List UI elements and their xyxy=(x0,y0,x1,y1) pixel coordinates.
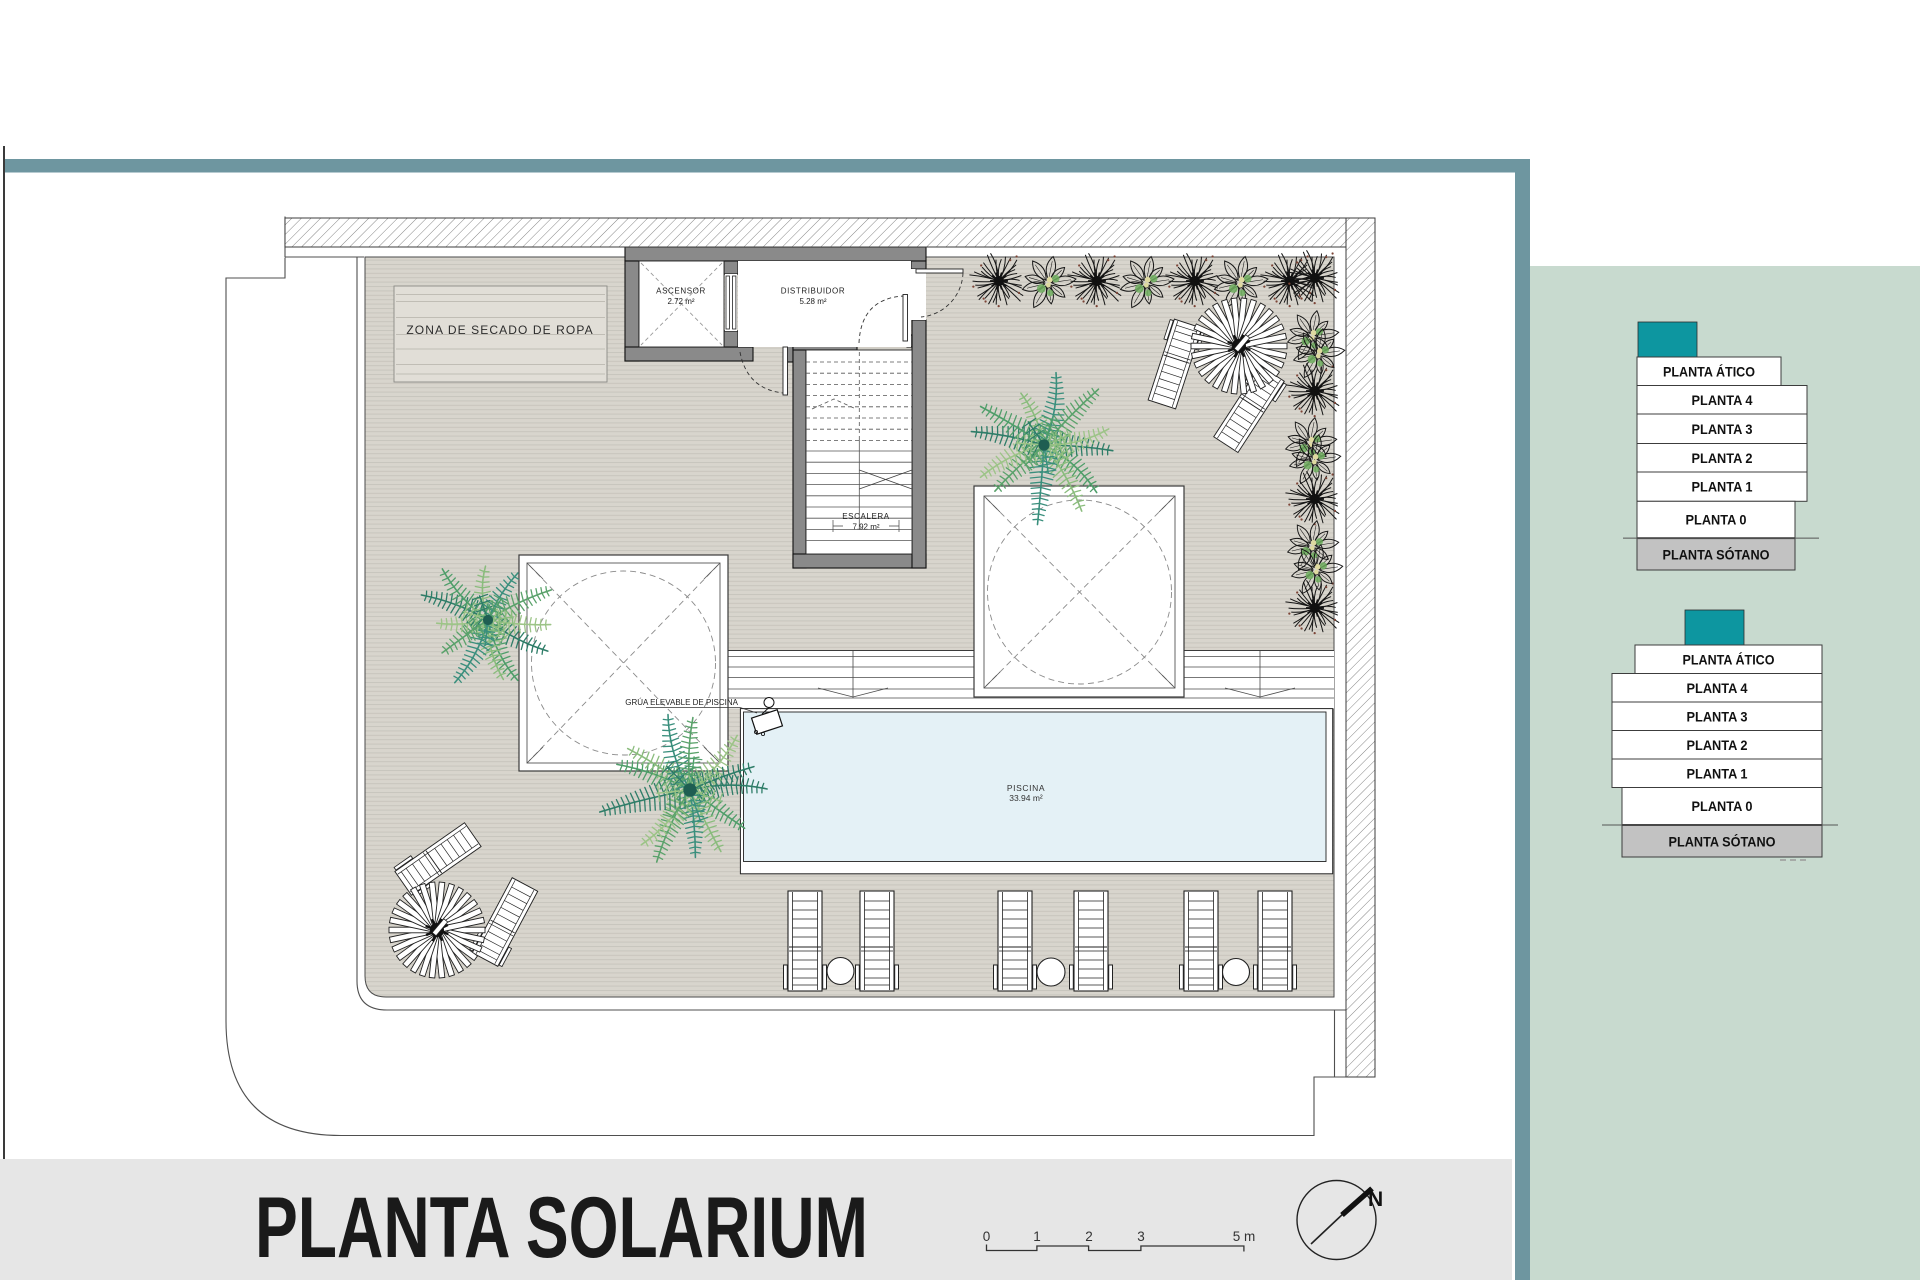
svg-text:PLANTA 3: PLANTA 3 xyxy=(1687,708,1748,724)
svg-text:PLANTA 0: PLANTA 0 xyxy=(1686,512,1747,528)
svg-text:5 m: 5 m xyxy=(1233,1229,1256,1244)
svg-text:PLANTA SÓTANO: PLANTA SÓTANO xyxy=(1663,545,1770,562)
svg-text:ESCALERA: ESCALERA xyxy=(842,512,890,521)
svg-text:5.28 m²: 5.28 m² xyxy=(799,297,826,306)
svg-text:2.72 m²: 2.72 m² xyxy=(667,297,694,306)
svg-text:PLANTA 4: PLANTA 4 xyxy=(1692,392,1753,408)
svg-text:PLANTA 0: PLANTA 0 xyxy=(1692,798,1753,814)
svg-text:2: 2 xyxy=(1085,1229,1093,1244)
svg-text:ZONA DE SECADO DE ROPA: ZONA DE SECADO DE ROPA xyxy=(406,323,593,337)
svg-text:PISCINA: PISCINA xyxy=(1007,783,1045,793)
svg-text:PLANTA ÁTICO: PLANTA ÁTICO xyxy=(1683,651,1775,667)
svg-text:33.94 m²: 33.94 m² xyxy=(1009,793,1043,803)
svg-text:0: 0 xyxy=(983,1229,991,1244)
svg-text:DISTRIBUIDOR: DISTRIBUIDOR xyxy=(781,287,846,296)
svg-text:7.92 m²: 7.92 m² xyxy=(852,523,879,532)
svg-text:PLANTA 1: PLANTA 1 xyxy=(1692,479,1753,495)
svg-text:PLANTA SÓTANO: PLANTA SÓTANO xyxy=(1669,832,1776,849)
svg-text:PLANTA ÁTICO: PLANTA ÁTICO xyxy=(1663,363,1755,379)
svg-text:3: 3 xyxy=(1137,1229,1145,1244)
svg-text:PLANTA 2: PLANTA 2 xyxy=(1687,737,1748,753)
svg-text:ASCENSOR: ASCENSOR xyxy=(656,287,706,296)
svg-text:PLANTA 3: PLANTA 3 xyxy=(1692,421,1753,437)
svg-text:N: N xyxy=(1368,1188,1383,1211)
svg-text:PLANTA SOLARIUM: PLANTA SOLARIUM xyxy=(255,1180,868,1276)
svg-text:1: 1 xyxy=(1033,1229,1041,1244)
svg-text:PLANTA 4: PLANTA 4 xyxy=(1687,680,1748,696)
svg-text:PLANTA 1: PLANTA 1 xyxy=(1687,765,1748,781)
svg-text:PLANTA 2: PLANTA 2 xyxy=(1692,450,1753,466)
svg-text:GRÚA ELEVABLE DE PISCINA: GRÚA ELEVABLE DE PISCINA xyxy=(625,698,738,707)
